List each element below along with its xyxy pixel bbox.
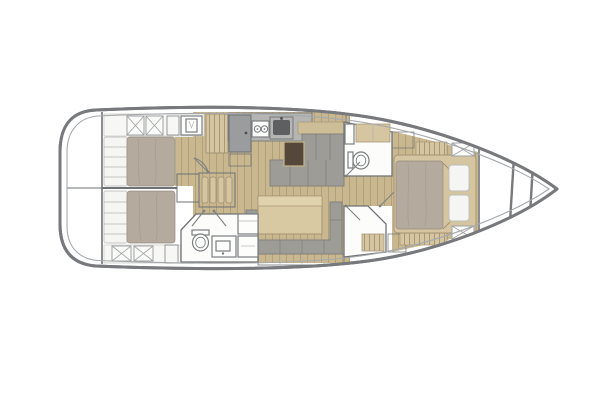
vanity-sink-icon: [212, 236, 236, 257]
blanket: [127, 191, 175, 243]
pillow-icon: [449, 165, 469, 191]
yacht-floorplan-canvas: [0, 0, 600, 400]
double-bed-icon: [104, 137, 175, 186]
locker-x-icon: [112, 246, 131, 261]
bench-icon: [362, 234, 384, 251]
head-cabinet: [238, 214, 258, 257]
blanket: [127, 137, 175, 186]
wardrobe-icon: [206, 114, 228, 153]
settee-back: [298, 122, 348, 134]
aft-head: [181, 214, 258, 262]
table-icon: [258, 196, 322, 234]
toilet-icon: [348, 152, 369, 169]
double-bed-icon: [394, 155, 476, 233]
pillow-icon: [104, 191, 127, 243]
double-bed-icon: [104, 191, 175, 243]
pillow-icon: [449, 195, 469, 221]
toilet-icon: [192, 230, 209, 251]
passage-sole: [350, 176, 392, 206]
stove-icon: [252, 121, 269, 137]
locker-x-icon: [127, 116, 144, 135]
blanket: [396, 161, 443, 229]
sideboard-dark: [284, 142, 304, 166]
head-locker: [345, 124, 354, 144]
wetbar-sink-icon: [181, 116, 202, 135]
fridge-icon: [229, 115, 251, 152]
locker-x-icon: [146, 116, 163, 135]
forward-head: [344, 122, 392, 176]
pillow-icon: [104, 137, 127, 186]
shelf-slats: [416, 142, 447, 156]
yacht-floorplan: [0, 0, 600, 400]
locker-x-icon: [134, 246, 153, 261]
